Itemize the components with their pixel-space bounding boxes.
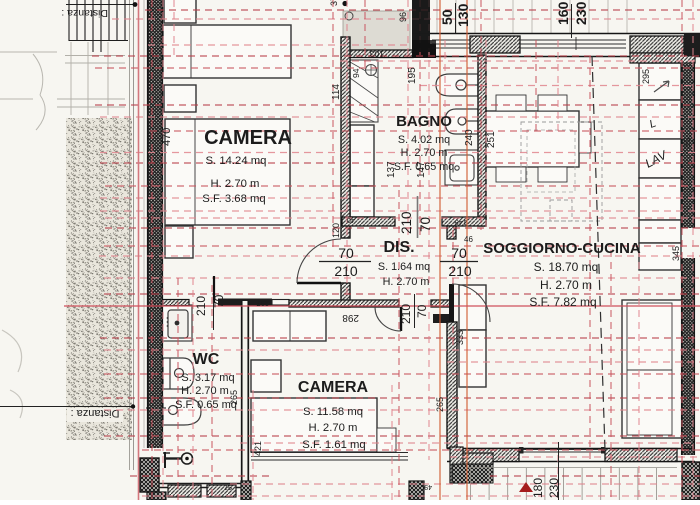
svg-text:94: 94	[351, 68, 361, 78]
svg-text:210: 210	[448, 263, 472, 279]
svg-text:70: 70	[338, 245, 354, 261]
svg-text:70: 70	[212, 294, 226, 308]
svg-text:S. 18.70 mq: S. 18.70 mq	[534, 260, 599, 274]
svg-text:49: 49	[424, 483, 432, 490]
svg-text:120: 120	[331, 223, 341, 238]
svg-text:40: 40	[347, 216, 355, 225]
svg-text:Distanza :: Distanza :	[71, 407, 120, 419]
svg-text:S.F. 3.68 mq: S.F. 3.68 mq	[202, 193, 265, 205]
svg-text:149: 149	[454, 218, 467, 227]
svg-text:S.F. 0.65 mq: S.F. 0.65 mq	[175, 399, 237, 411]
svg-text:240: 240	[464, 129, 475, 146]
svg-text:230: 230	[547, 478, 561, 498]
svg-text:470: 470	[161, 128, 173, 146]
svg-text:114: 114	[331, 84, 342, 100]
svg-text:S.F. 0.65 mq: S.F. 0.65 mq	[394, 161, 455, 173]
svg-text:H. 2.70 m: H. 2.70 m	[181, 385, 229, 397]
svg-text:160: 160	[555, 1, 571, 25]
svg-text:70: 70	[415, 304, 429, 318]
svg-text:295: 295	[641, 69, 651, 84]
svg-text:H. 2.70 m: H. 2.70 m	[540, 278, 592, 292]
svg-text:46: 46	[464, 235, 473, 244]
svg-text:421: 421	[253, 441, 263, 456]
svg-text:H. 2.70 m: H. 2.70 m	[383, 276, 430, 288]
svg-text:S.F. 7.82 mq: S.F. 7.82 mq	[529, 295, 596, 309]
svg-text:333: 333	[455, 330, 465, 345]
svg-text:S. 4.02 mq: S. 4.02 mq	[398, 134, 450, 146]
svg-text:H. 2.70 m: H. 2.70 m	[309, 422, 358, 434]
svg-text:S. 3.17 mq: S. 3.17 mq	[181, 372, 234, 384]
svg-text:CAMERA: CAMERA	[298, 379, 369, 396]
svg-text:H. 2.70 m: H. 2.70 m	[401, 147, 448, 159]
svg-text:Distanza :: Distanza :	[61, 7, 108, 19]
svg-text:130: 130	[455, 3, 471, 27]
svg-text:S. 11.58 mq: S. 11.58 mq	[303, 406, 363, 418]
svg-text:230: 230	[573, 1, 589, 25]
svg-text:210: 210	[399, 211, 414, 234]
svg-text:70: 70	[418, 217, 433, 232]
svg-text:251: 251	[486, 131, 497, 148]
svg-text:210: 210	[399, 304, 413, 324]
svg-text:BAGNO: BAGNO	[396, 113, 452, 130]
svg-text:DIS.: DIS.	[383, 239, 414, 256]
svg-text:WC: WC	[193, 351, 220, 368]
svg-text:86: 86	[682, 138, 692, 148]
svg-text:CAMERA: CAMERA	[204, 127, 292, 149]
svg-text:210: 210	[194, 296, 208, 316]
svg-text:S. 1.64 mq: S. 1.64 mq	[378, 261, 430, 273]
svg-text:97: 97	[224, 483, 232, 490]
svg-text:195: 195	[407, 67, 418, 84]
svg-text:S.F. 1.61 mq: S.F. 1.61 mq	[302, 439, 365, 451]
svg-text:50: 50	[439, 9, 455, 25]
svg-text:298: 298	[342, 312, 359, 323]
svg-text:373: 373	[329, 0, 339, 6]
svg-text:70: 70	[451, 245, 467, 261]
svg-text:265: 265	[435, 397, 445, 412]
svg-text:H. 2.70 m: H. 2.70 m	[211, 178, 260, 190]
svg-text:96: 96	[398, 12, 408, 22]
svg-text:345: 345	[671, 246, 681, 261]
svg-text:180: 180	[531, 478, 545, 498]
svg-text:210: 210	[334, 263, 358, 279]
svg-text:103: 103	[370, 49, 384, 59]
svg-text:S. 14.24 mq: S. 14.24 mq	[206, 155, 267, 167]
svg-text:297: 297	[256, 299, 269, 308]
svg-text:SOGGIORNO-CUCINA: SOGGIORNO-CUCINA	[483, 240, 641, 257]
